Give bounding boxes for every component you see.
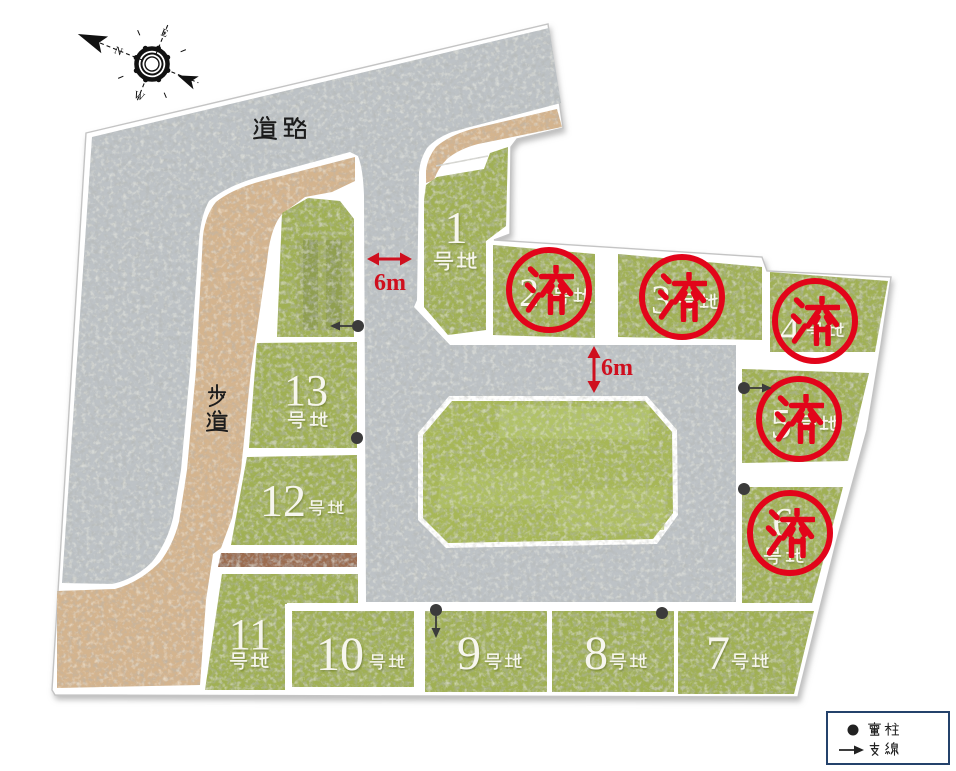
svg-text:1: 1 <box>445 202 468 253</box>
svg-text:10: 10 <box>316 628 364 681</box>
svg-text:W: W <box>132 89 147 104</box>
svg-text:N: N <box>112 44 124 58</box>
svg-text:6m: 6m <box>601 355 633 381</box>
svg-text:12: 12 <box>260 475 306 526</box>
svg-text:9: 9 <box>457 627 481 680</box>
svg-text:13: 13 <box>284 366 328 415</box>
svg-text:8: 8 <box>584 627 608 680</box>
svg-text:6m: 6m <box>374 270 406 296</box>
svg-text:11: 11 <box>229 610 271 659</box>
svg-text:E: E <box>159 27 170 41</box>
svg-text:7: 7 <box>706 627 730 680</box>
